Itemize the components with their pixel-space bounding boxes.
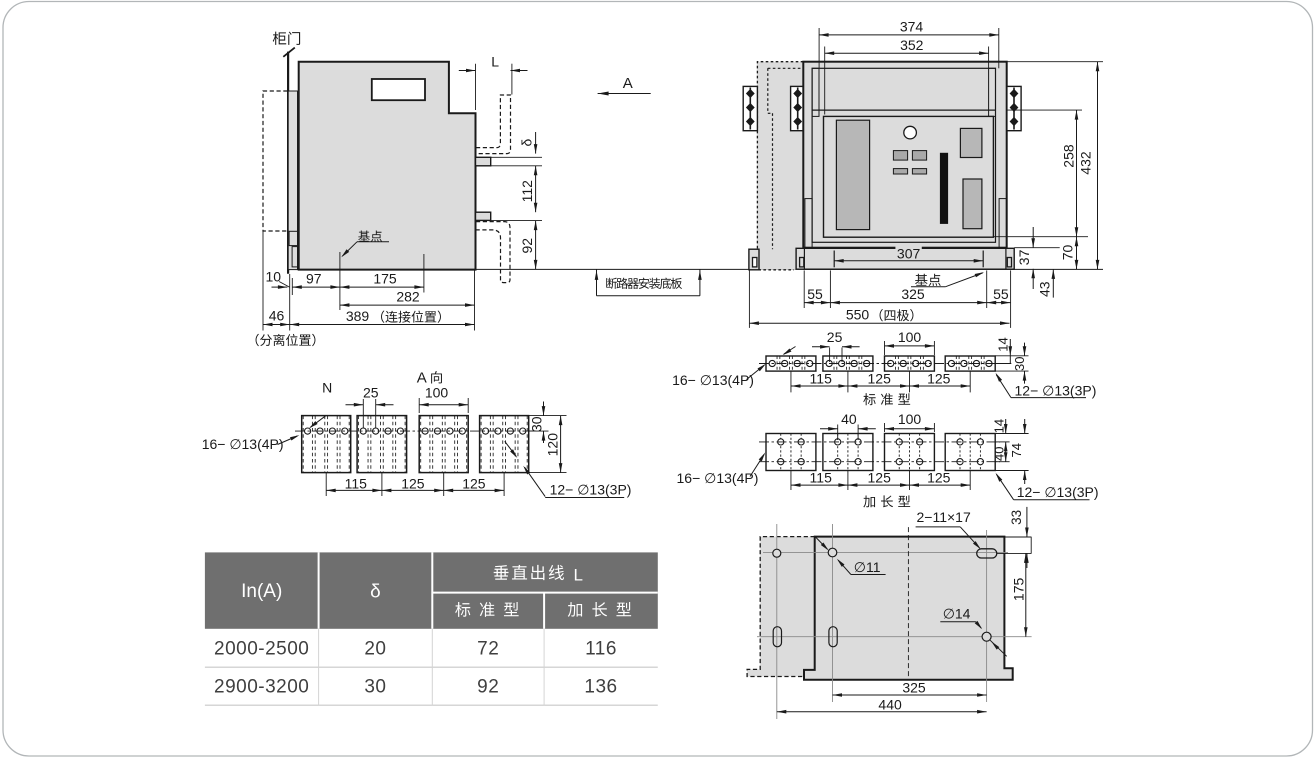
svg-text:282: 282 (396, 289, 420, 305)
svg-text:δ: δ (519, 138, 535, 146)
svg-text:40: 40 (992, 447, 1007, 461)
svg-text:25: 25 (827, 329, 843, 345)
svg-text:74: 74 (1009, 443, 1024, 457)
svg-text:115: 115 (810, 469, 833, 485)
svg-text:46: 46 (269, 308, 285, 324)
svg-text:30: 30 (529, 416, 545, 432)
svg-text:175: 175 (1011, 578, 1027, 602)
svg-text:2000-2500: 2000-2500 (214, 639, 309, 660)
svg-text:55: 55 (993, 286, 1009, 302)
svg-text:2900-3200: 2900-3200 (214, 676, 309, 697)
svg-text:389: 389 (346, 308, 370, 324)
svg-text:550: 550 (846, 306, 870, 322)
svg-text:97: 97 (306, 271, 322, 287)
svg-text:10: 10 (266, 269, 282, 285)
svg-text:N: N (322, 380, 332, 396)
svg-text:136: 136 (584, 676, 617, 697)
svg-text:72: 72 (477, 639, 499, 660)
svg-text:115: 115 (345, 475, 368, 491)
svg-text:100: 100 (898, 329, 922, 345)
svg-text:33: 33 (1009, 510, 1024, 525)
svg-text:16− ∅13(4P): 16− ∅13(4P) (202, 436, 284, 452)
svg-text:432: 432 (1078, 151, 1094, 175)
svg-text:70: 70 (1059, 245, 1075, 261)
svg-text:112: 112 (519, 180, 535, 203)
svg-text:125: 125 (927, 370, 951, 386)
svg-text:L: L (574, 566, 583, 585)
svg-text:125: 125 (927, 469, 951, 485)
svg-text:37: 37 (1016, 249, 1032, 265)
svg-text:120: 120 (545, 433, 561, 457)
svg-text:440: 440 (878, 696, 902, 712)
svg-text:14: 14 (992, 419, 1007, 433)
svg-text:100: 100 (898, 411, 922, 427)
svg-text:374: 374 (900, 19, 924, 35)
svg-text:55: 55 (807, 286, 823, 302)
svg-text:12− ∅13(3P): 12− ∅13(3P) (1015, 382, 1097, 398)
svg-text:116: 116 (585, 639, 617, 660)
svg-text:2−11×17: 2−11×17 (917, 509, 971, 525)
svg-text:16− ∅13(4P): 16− ∅13(4P) (677, 470, 759, 486)
svg-text:20: 20 (364, 639, 386, 660)
svg-text:∅11: ∅11 (854, 559, 881, 575)
svg-text:12− ∅13(3P): 12− ∅13(3P) (550, 482, 632, 498)
svg-text:125: 125 (868, 370, 892, 386)
svg-text:δ: δ (370, 582, 381, 603)
svg-text:L: L (491, 54, 499, 70)
svg-text:25: 25 (363, 385, 379, 401)
svg-text:92: 92 (477, 676, 499, 697)
svg-text:40: 40 (841, 411, 857, 427)
svg-text:In(A): In(A) (241, 581, 282, 602)
svg-text:175: 175 (373, 271, 397, 287)
svg-text:A: A (623, 75, 633, 92)
svg-text:∅14: ∅14 (943, 606, 971, 622)
svg-text:12− ∅13(3P): 12− ∅13(3P) (1017, 484, 1099, 500)
svg-text:325: 325 (901, 286, 925, 302)
svg-text:115: 115 (810, 370, 833, 386)
svg-text:16− ∅13(4P): 16− ∅13(4P) (672, 372, 754, 388)
svg-text:30: 30 (1012, 356, 1027, 370)
svg-text:100: 100 (425, 385, 449, 401)
svg-text:125: 125 (401, 475, 425, 491)
svg-text:307: 307 (897, 245, 921, 261)
svg-text:125: 125 (868, 469, 892, 485)
svg-text:43: 43 (1037, 281, 1053, 297)
svg-text:352: 352 (900, 37, 924, 53)
svg-text:14: 14 (996, 337, 1011, 351)
svg-text:30: 30 (364, 676, 386, 697)
svg-text:325: 325 (902, 680, 926, 696)
svg-text:92: 92 (519, 238, 535, 254)
svg-text:258: 258 (1061, 144, 1077, 168)
svg-text:125: 125 (462, 475, 486, 491)
